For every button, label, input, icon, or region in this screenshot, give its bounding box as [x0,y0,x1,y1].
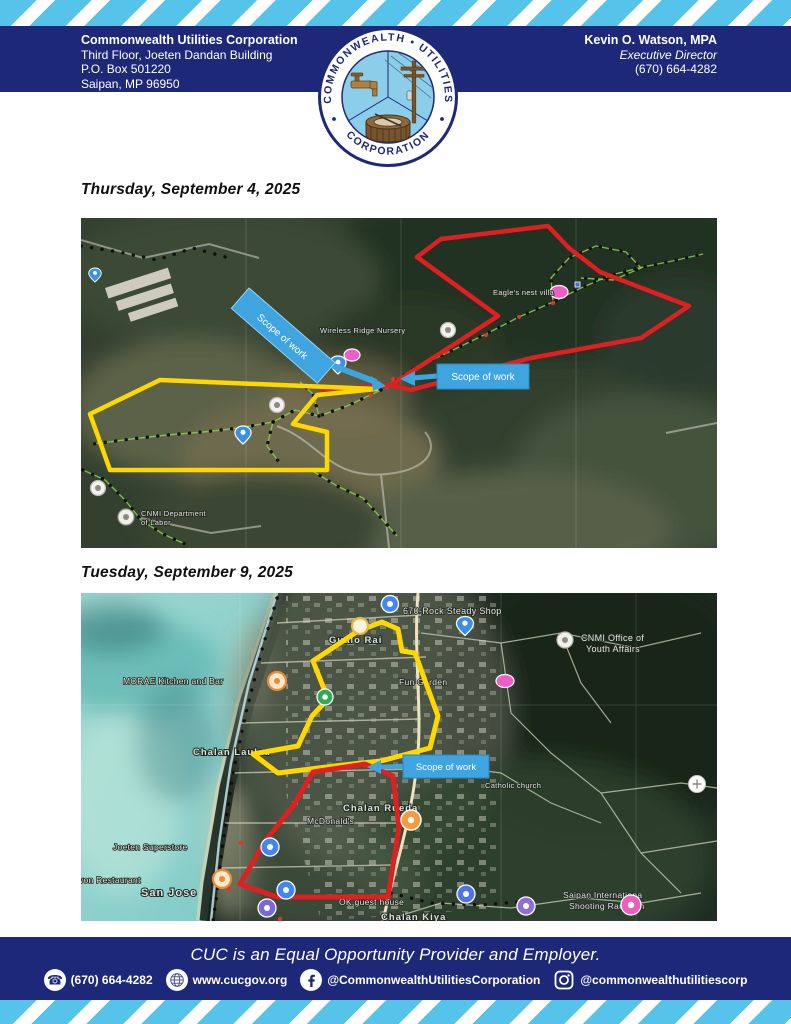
map-label: Wireless Ridge Nursery [320,326,405,335]
date-heading-sept4: Thursday, September 4, 2025 [81,181,300,199]
address-line: Saipan, MP 96950 [81,77,298,92]
well-icon [366,114,410,142]
footer-contacts: ☎ (670) 664-4282 www.cucgov.org [0,969,791,991]
footer-phone: ☎ (670) 664-4282 [44,969,153,991]
globe-icon [166,969,188,991]
date-heading-sept9: Tuesday, September 9, 2025 [81,564,293,582]
map-label: Eagle's nest villa [493,288,555,297]
map-image-september-9: 670-Rock Steady Shop Gualo Rai CNMI Offi… [81,593,717,921]
phone-icon: ☎ [44,969,66,991]
decorative-stripes-bottom [0,1000,791,1024]
facebook-icon [300,969,322,991]
footer-instagram-text: @commonwealthutilitiescorp [580,973,747,987]
map-label: won Restaurant [81,875,141,885]
map-label: McDonald's [307,816,354,826]
footer-website: www.cucgov.org [166,969,288,991]
svg-text:Scope of work: Scope of work [416,762,476,773]
map-label: MORAE Kitchen and Bar [123,676,223,686]
map-label: 670-Rock Steady Shop [403,606,502,616]
footer-facebook: @CommonwealthUtilitiesCorporation [300,969,540,991]
footer-phone-text: (670) 664-4282 [71,973,153,987]
org-name: Commonwealth Utilities Corporation [81,33,298,48]
map-label: CNMI Office of [581,633,644,643]
officer-title: Executive Director [584,48,717,63]
map-label: San Jose [141,887,197,899]
map-label: Catholic church [485,781,541,790]
map-image-september-4: Eagle's nest villa Wireless Ridge Nurser… [81,218,717,548]
instagram-icon [553,969,575,991]
svg-text:☎: ☎ [46,974,62,989]
footer-bar: CUC is an Equal Opportunity Provider and… [0,937,791,1000]
address-line: Third Floor, Joeten Dandan Building [81,48,298,63]
footer-instagram: @commonwealthutilitiescorp [553,969,747,991]
org-address-block: Commonwealth Utilities Corporation Third… [81,33,298,91]
footer-website-text: www.cucgov.org [193,973,288,987]
address-line: P.O. Box 501220 [81,62,298,77]
decorative-stripes-top [0,0,791,26]
map-label: Chalan Kiya [381,912,446,921]
map-label: CNMI Department [141,509,207,518]
cuc-logo: COMMONWEALTH • UTILITIES CORPORATION [317,26,459,168]
officer-name: Kevin O. Watson, MPA [584,33,717,48]
eeo-tagline: CUC is an Equal Opportunity Provider and… [0,937,791,965]
map-label: Youth Affairs [586,644,640,654]
footer-facebook-text: @CommonwealthUtilitiesCorporation [327,973,540,987]
officer-phone: (670) 664-4282 [584,62,717,77]
letter-page: Commonwealth Utilities Corporation Third… [0,0,791,1024]
map-label: Joeten Superstore [113,842,188,852]
map-label: of Labor [141,518,171,527]
svg-text:Scope of work: Scope of work [451,372,515,383]
officer-contact-block: Kevin O. Watson, MPA Executive Director … [584,33,717,77]
